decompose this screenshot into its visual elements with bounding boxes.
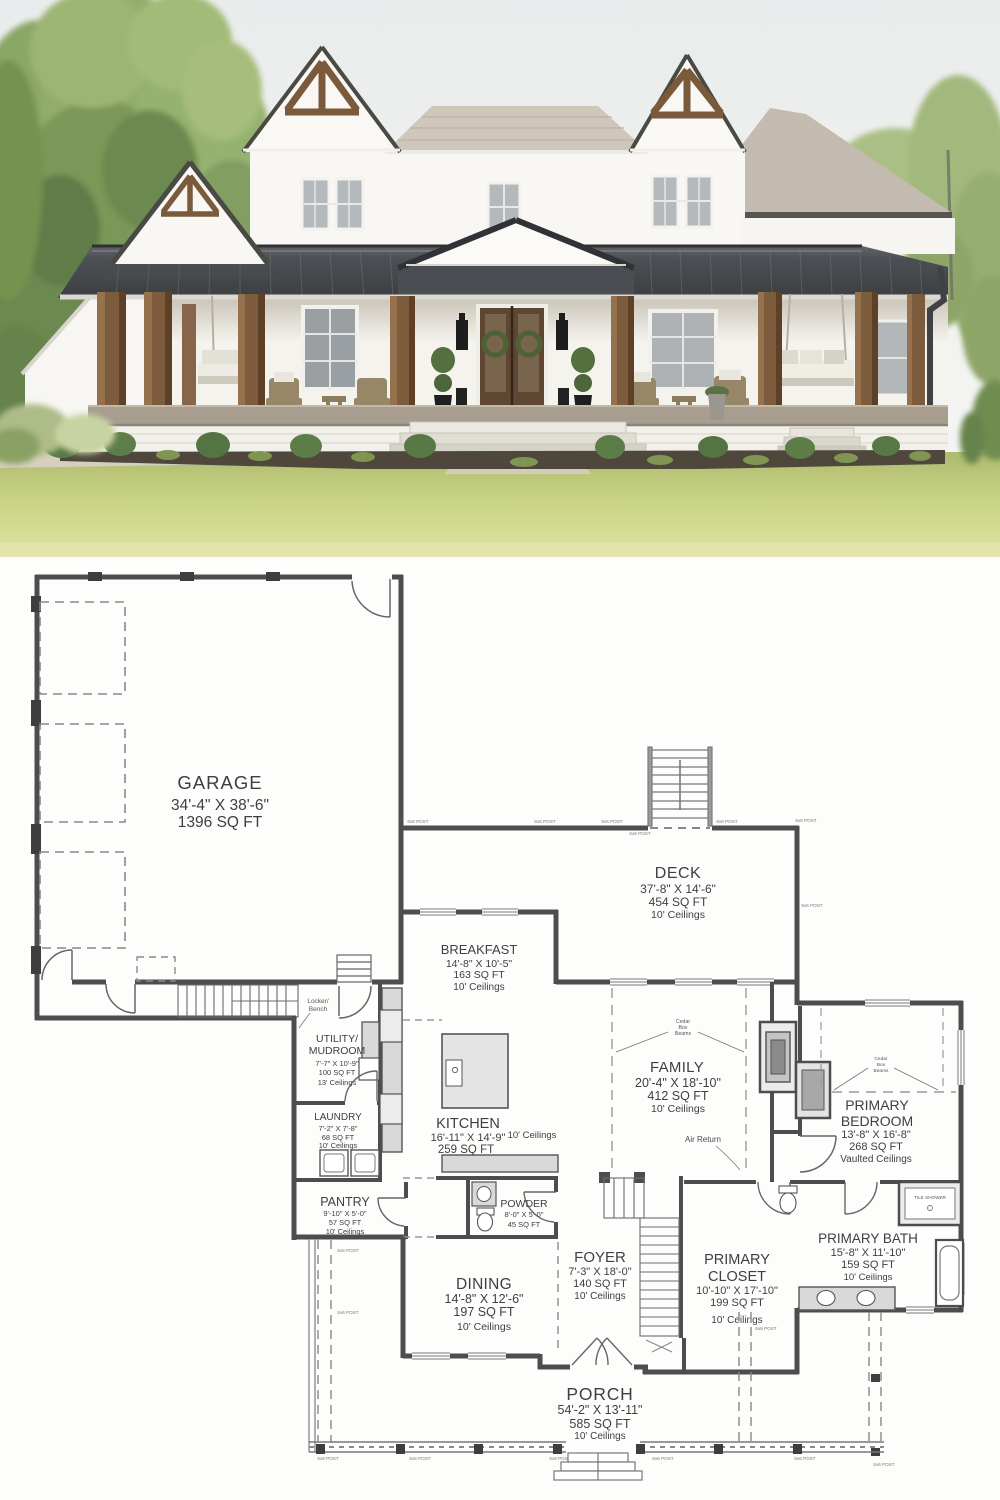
svg-text:Vaulted Ceilings: Vaulted Ceilings [840, 1154, 912, 1165]
svg-text:45 SQ FT: 45 SQ FT [508, 1220, 541, 1229]
svg-text:6x6 POST: 6x6 POST [407, 819, 428, 824]
svg-text:PRIMARY BATH: PRIMARY BATH [818, 1231, 918, 1246]
svg-text:6x6 POST: 6x6 POST [629, 831, 650, 836]
svg-text:Cedar: Cedar [874, 1056, 887, 1062]
svg-text:9'-10" X 5'-0": 9'-10" X 5'-0" [323, 1209, 367, 1218]
svg-text:140 SQ FT: 140 SQ FT [573, 1278, 627, 1290]
svg-text:10' Ceilings: 10' Ceilings [508, 1130, 557, 1141]
svg-text:10' Ceilings: 10' Ceilings [651, 909, 705, 921]
svg-text:FOYER: FOYER [574, 1249, 626, 1266]
svg-text:BEDROOM: BEDROOM [841, 1113, 913, 1129]
svg-text:Beams: Beams [675, 1031, 692, 1037]
svg-text:454 SQ FT: 454 SQ FT [649, 895, 708, 909]
svg-text:1396 SQ FT: 1396 SQ FT [178, 814, 263, 831]
svg-text:POWDER: POWDER [500, 1198, 548, 1210]
svg-text:10' Ceilings: 10' Ceilings [574, 1291, 625, 1302]
svg-text:TILE SHOWER: TILE SHOWER [914, 1195, 946, 1200]
svg-text:UTILITY/: UTILITY/ [316, 1033, 358, 1045]
svg-text:GARAGE: GARAGE [177, 772, 262, 793]
svg-text:BREAKFAST: BREAKFAST [441, 942, 518, 957]
svg-text:6x6 POST: 6x6 POST [755, 1326, 776, 1331]
svg-text:6x6 POST: 6x6 POST [337, 1248, 358, 1253]
svg-text:10'-10" X 17'-10": 10'-10" X 17'-10" [696, 1285, 778, 1297]
svg-text:DINING: DINING [456, 1276, 512, 1293]
svg-text:10' Ceilings: 10' Ceilings [844, 1272, 893, 1283]
svg-text:412 SQ FT: 412 SQ FT [647, 1089, 708, 1103]
svg-text:Box: Box [877, 1062, 886, 1068]
svg-text:10' Ceilings: 10' Ceilings [453, 982, 504, 993]
svg-text:CLOSET: CLOSET [708, 1269, 766, 1285]
svg-text:100 SQ FT: 100 SQ FT [319, 1068, 356, 1077]
svg-text:6x6 POST: 6x6 POST [795, 818, 816, 823]
svg-text:KITCHEN: KITCHEN [436, 1116, 500, 1132]
svg-text:DECK: DECK [655, 865, 701, 882]
svg-text:37'-8" X 14'-6": 37'-8" X 14'-6" [640, 882, 716, 896]
svg-text:Bench: Bench [309, 1006, 328, 1013]
svg-text:585 SQ FT: 585 SQ FT [569, 1417, 630, 1431]
svg-text:34'-4" X 38'-6": 34'-4" X 38'-6" [171, 797, 269, 814]
svg-text:6x6 POST: 6x6 POST [534, 819, 555, 824]
svg-text:10' Ceilings: 10' Ceilings [326, 1227, 365, 1236]
svg-text:6x6 POST: 6x6 POST [409, 1456, 430, 1461]
svg-text:6x6 POST: 6x6 POST [337, 1310, 358, 1315]
svg-text:259 SQ FT: 259 SQ FT [438, 1144, 494, 1156]
svg-text:14'-8" X 12'-6": 14'-8" X 12'-6" [445, 1292, 524, 1306]
svg-text:8'-0" X 5'-0": 8'-0" X 5'-0" [504, 1210, 543, 1219]
svg-text:7'-2" X 7'-8": 7'-2" X 7'-8" [318, 1124, 357, 1133]
svg-text:PORCH: PORCH [566, 1384, 633, 1404]
svg-text:10' Ceilings: 10' Ceilings [651, 1103, 705, 1115]
svg-text:10' Ceilings: 10' Ceilings [574, 1431, 625, 1442]
svg-text:7'-3" X 18'-0": 7'-3" X 18'-0" [568, 1266, 631, 1278]
svg-text:57 SQ FT: 57 SQ FT [329, 1218, 362, 1227]
svg-text:6x6 POST: 6x6 POST [801, 903, 822, 908]
svg-text:16'-11" X 14'-9": 16'-11" X 14'-9" [431, 1132, 506, 1144]
svg-text:10' Ceilings: 10' Ceilings [319, 1141, 358, 1150]
svg-text:7'-7" X 10'-9": 7'-7" X 10'-9" [315, 1059, 359, 1068]
svg-text:13'-8" X 16'-8": 13'-8" X 16'-8" [841, 1129, 911, 1141]
svg-text:199 SQ FT: 199 SQ FT [710, 1297, 764, 1309]
svg-text:10' Ceilings: 10' Ceilings [457, 1321, 511, 1333]
svg-text:163 SQ FT: 163 SQ FT [453, 969, 505, 981]
svg-text:MUDROOM: MUDROOM [309, 1045, 366, 1057]
svg-text:268 SQ FT: 268 SQ FT [849, 1141, 903, 1153]
svg-text:6x6 POST: 6x6 POST [601, 819, 622, 824]
svg-text:54'-2" X 13'-11": 54'-2" X 13'-11" [558, 1403, 643, 1417]
svg-text:PRIMARY: PRIMARY [704, 1252, 770, 1268]
svg-text:Beams: Beams [874, 1068, 890, 1074]
svg-text:FAMILY: FAMILY [650, 1059, 704, 1076]
svg-text:20'-4" X 18'-10": 20'-4" X 18'-10" [635, 1076, 721, 1090]
svg-text:6x6 POST: 6x6 POST [652, 1456, 673, 1461]
svg-text:Locker/: Locker/ [307, 998, 329, 1005]
svg-text:Air Return: Air Return [685, 1135, 721, 1144]
svg-text:159 SQ FT: 159 SQ FT [841, 1259, 895, 1271]
svg-text:15'-8" X 11'-10": 15'-8" X 11'-10" [831, 1247, 906, 1259]
svg-text:PANTRY: PANTRY [320, 1195, 370, 1209]
svg-text:197 SQ FT: 197 SQ FT [453, 1305, 514, 1319]
svg-text:10' Ceilings: 10' Ceilings [711, 1315, 762, 1326]
svg-text:6x6 POST: 6x6 POST [317, 1456, 338, 1461]
svg-text:6x6 POST: 6x6 POST [716, 819, 737, 824]
svg-text:6x6 POST: 6x6 POST [873, 1462, 894, 1467]
svg-text:6x6 POST: 6x6 POST [794, 1456, 815, 1461]
svg-text:PRIMARY: PRIMARY [845, 1097, 909, 1113]
svg-text:LAUNDRY: LAUNDRY [314, 1112, 362, 1123]
